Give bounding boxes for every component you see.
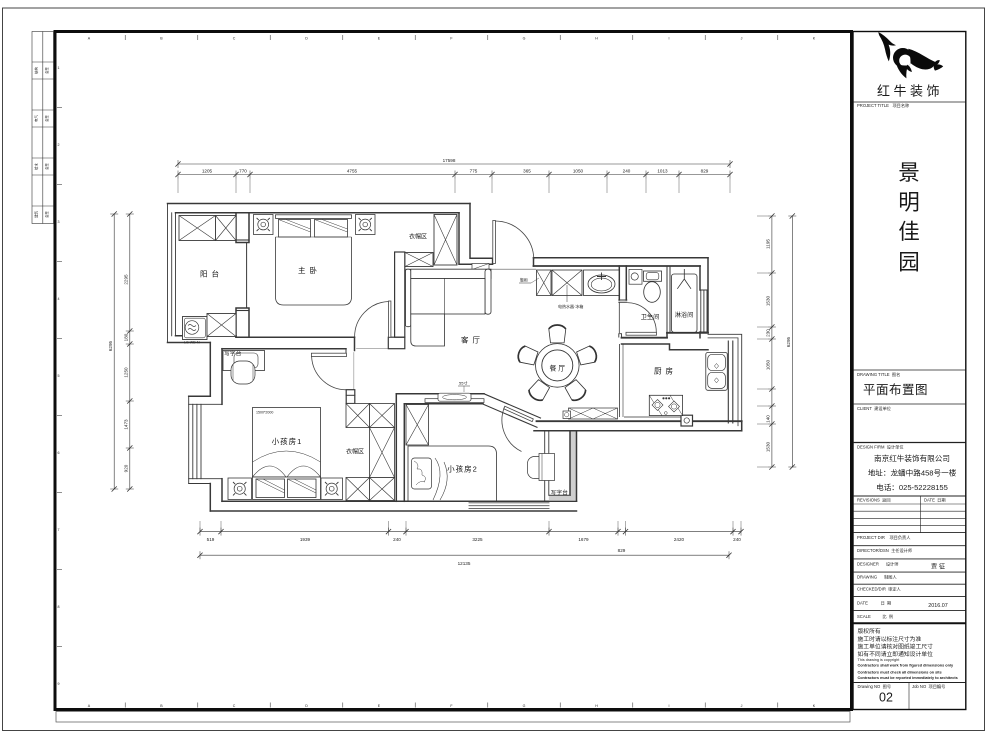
svg-text:小孩房1: 小孩房1 bbox=[272, 436, 303, 446]
svg-text:1050: 1050 bbox=[573, 169, 584, 174]
svg-text:1500*2000: 1500*2000 bbox=[256, 411, 273, 415]
svg-text:明: 明 bbox=[898, 191, 920, 215]
svg-text:This drawing is copyright: This drawing is copyright bbox=[858, 658, 901, 662]
svg-text:6295: 6295 bbox=[108, 340, 113, 351]
svg-text:景: 景 bbox=[898, 161, 920, 185]
svg-text:1: 1 bbox=[58, 66, 60, 70]
svg-text:775: 775 bbox=[470, 169, 478, 174]
svg-text:829: 829 bbox=[618, 548, 626, 553]
svg-text:电话：025-52228155: 电话：025-52228155 bbox=[876, 482, 948, 492]
svg-text:4: 4 bbox=[58, 297, 60, 301]
svg-text:REVISIONS 返回: REVISIONS 返回 bbox=[857, 497, 891, 504]
svg-text:1679: 1679 bbox=[578, 537, 589, 542]
svg-text:施工时请以标注尺寸为准: 施工时请以标注尺寸为准 bbox=[858, 635, 922, 643]
svg-text:5: 5 bbox=[58, 374, 60, 378]
svg-text:G: G bbox=[523, 704, 526, 708]
svg-text:写字台: 写字台 bbox=[551, 489, 569, 497]
svg-text:3: 3 bbox=[58, 220, 60, 224]
svg-text:DRAWING TITLE 图名: DRAWING TITLE 图名 bbox=[857, 371, 900, 378]
svg-text:365: 365 bbox=[523, 169, 531, 174]
svg-text:主 卧: 主 卧 bbox=[298, 265, 318, 275]
svg-text:770: 770 bbox=[239, 169, 247, 174]
svg-text:地址：龙蟠中路458号一楼: 地址：龙蟠中路458号一楼 bbox=[868, 468, 957, 478]
svg-text:H: H bbox=[595, 37, 598, 41]
svg-text:1013: 1013 bbox=[657, 169, 668, 174]
svg-text:LG WD-N: LG WD-N bbox=[184, 341, 200, 345]
svg-text:阳 台: 阳 台 bbox=[200, 269, 220, 279]
svg-text:G: G bbox=[523, 37, 526, 41]
svg-text:建筑: 建筑 bbox=[33, 211, 38, 218]
svg-text:DESIGN FIRM 设计单位: DESIGN FIRM 设计单位 bbox=[857, 444, 904, 451]
svg-text:2: 2 bbox=[58, 143, 60, 147]
svg-text:240: 240 bbox=[393, 537, 401, 542]
svg-text:6: 6 bbox=[58, 451, 60, 455]
svg-text:H: H bbox=[595, 704, 598, 708]
svg-text:佳: 佳 bbox=[898, 220, 920, 244]
svg-text:920: 920 bbox=[124, 464, 129, 472]
svg-text:如有不同请立即通知设计单位: 如有不同请立即通知设计单位 bbox=[858, 650, 934, 658]
svg-text:2295: 2295 bbox=[124, 274, 129, 285]
svg-text:2420: 2420 bbox=[674, 537, 685, 542]
svg-text:240: 240 bbox=[733, 537, 741, 542]
svg-text:240: 240 bbox=[623, 169, 631, 174]
svg-text:I: I bbox=[669, 37, 670, 41]
svg-text:SCALE 比 例: SCALE 比 例 bbox=[857, 613, 893, 620]
svg-text:17598: 17598 bbox=[443, 158, 456, 163]
svg-text:客 厅: 客 厅 bbox=[461, 335, 481, 345]
svg-text:PROJECT TITLE 项目名称: PROJECT TITLE 项目名称 bbox=[857, 102, 909, 109]
svg-text:厨 房: 厨 房 bbox=[654, 366, 674, 376]
svg-text:1473: 1473 bbox=[124, 419, 129, 430]
svg-text:结构: 结构 bbox=[33, 67, 38, 74]
svg-text:鞋柜: 鞋柜 bbox=[520, 277, 528, 283]
svg-text:平面布置图: 平面布置图 bbox=[863, 383, 928, 397]
svg-text:园: 园 bbox=[898, 251, 920, 275]
svg-text:4755: 4755 bbox=[347, 169, 358, 174]
svg-text:180: 180 bbox=[124, 333, 129, 341]
svg-text:Contractors must be reported i: Contractors must be reported immediately… bbox=[858, 676, 958, 680]
svg-text:Job NO 项目编号: Job NO 项目编号 bbox=[912, 683, 945, 690]
svg-text:2016.07: 2016.07 bbox=[928, 603, 948, 609]
svg-text:8: 8 bbox=[58, 605, 60, 609]
svg-text:C: C bbox=[233, 37, 236, 41]
svg-text:红牛装饰: 红牛装饰 bbox=[877, 84, 943, 99]
svg-text:3225: 3225 bbox=[472, 537, 483, 542]
svg-text:6295: 6295 bbox=[786, 336, 791, 347]
svg-text:会签: 会签 bbox=[44, 163, 49, 170]
svg-text:1250: 1250 bbox=[124, 367, 129, 378]
svg-text:1530: 1530 bbox=[766, 441, 771, 452]
svg-text:淋浴间: 淋浴间 bbox=[675, 311, 694, 319]
svg-text:会签: 会签 bbox=[44, 211, 49, 218]
svg-text:140: 140 bbox=[766, 415, 771, 423]
svg-text:230: 230 bbox=[766, 329, 771, 337]
svg-text:餐 厅: 餐 厅 bbox=[550, 363, 566, 372]
svg-text:02: 02 bbox=[879, 691, 893, 705]
svg-text:CHECKED/DIR 审定人: CHECKED/DIR 审定人 bbox=[857, 586, 902, 593]
svg-text:DRAWING 制图人: DRAWING 制图人 bbox=[857, 574, 897, 581]
svg-text:D: D bbox=[305, 704, 308, 708]
svg-text:I: I bbox=[669, 704, 670, 708]
svg-text:PROJECT DIR 项目负责人: PROJECT DIR 项目负责人 bbox=[857, 534, 911, 541]
svg-text:1205: 1205 bbox=[202, 169, 213, 174]
svg-text:J: J bbox=[741, 37, 743, 41]
svg-text:12135: 12135 bbox=[458, 561, 471, 566]
svg-text:给水: 给水 bbox=[33, 163, 38, 170]
svg-text:7: 7 bbox=[58, 528, 60, 532]
svg-text:1530: 1530 bbox=[766, 295, 771, 306]
svg-text:电热水器·冰箱: 电热水器·冰箱 bbox=[558, 303, 583, 309]
svg-text:1195: 1195 bbox=[766, 239, 771, 249]
svg-text:会签: 会签 bbox=[44, 67, 49, 74]
svg-text:CLIENT 建设单位: CLIENT 建设单位 bbox=[857, 405, 891, 412]
svg-text:会签: 会签 bbox=[44, 115, 49, 122]
svg-text:南京红牛装饰有限公司: 南京红牛装饰有限公司 bbox=[874, 453, 950, 463]
svg-text:写字台: 写字台 bbox=[224, 350, 242, 358]
svg-text:829: 829 bbox=[701, 169, 709, 174]
svg-text:D: D bbox=[305, 37, 308, 41]
svg-text:C: C bbox=[233, 704, 236, 708]
svg-text:Contractors shall work from fi: Contractors shall work from figured dime… bbox=[858, 664, 954, 668]
svg-text:519: 519 bbox=[207, 537, 215, 542]
svg-text:版权所有: 版权所有 bbox=[858, 627, 881, 635]
svg-text:贾 征: 贾 征 bbox=[931, 563, 945, 571]
svg-text:55寸: 55寸 bbox=[459, 380, 467, 386]
svg-text:1939: 1939 bbox=[300, 537, 311, 542]
svg-text:DESIGNER 设计师: DESIGNER 设计师 bbox=[857, 560, 898, 567]
svg-text:J: J bbox=[741, 704, 743, 708]
svg-text:施工单位请核对图纸竣工尺寸: 施工单位请核对图纸竣工尺寸 bbox=[858, 643, 934, 651]
svg-text:1050: 1050 bbox=[766, 359, 771, 370]
svg-text:电气: 电气 bbox=[33, 115, 38, 122]
svg-text:卫生间: 卫生间 bbox=[641, 313, 660, 321]
svg-text:DIRECTOR/DSN 主任设计师: DIRECTOR/DSN 主任设计师 bbox=[857, 547, 912, 554]
svg-text:Contractors must check all dim: Contractors must check all dimensions on… bbox=[858, 671, 942, 675]
svg-text:9: 9 bbox=[58, 682, 60, 686]
svg-text:小孩房2: 小孩房2 bbox=[447, 464, 478, 474]
svg-text:衣帽区: 衣帽区 bbox=[346, 448, 364, 456]
svg-text:衣帽区: 衣帽区 bbox=[409, 233, 427, 241]
